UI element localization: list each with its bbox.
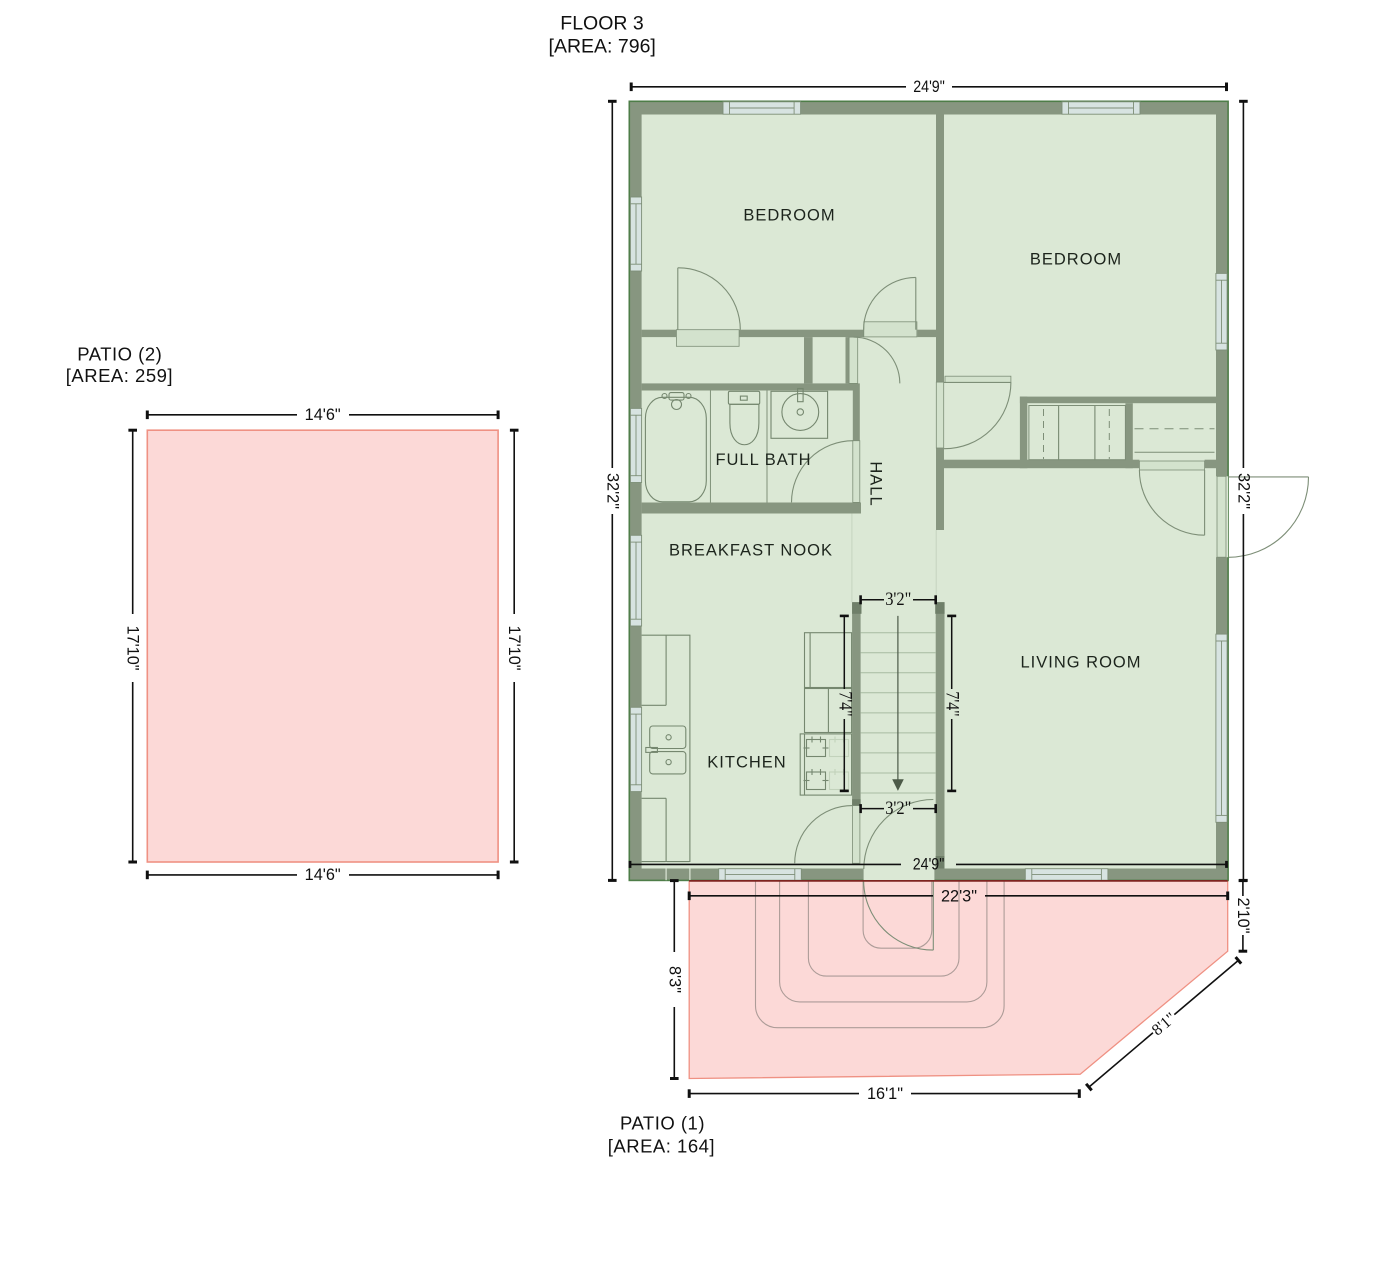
svg-text:HALL: HALL xyxy=(867,461,885,506)
svg-text:FLOOR 3: FLOOR 3 xyxy=(560,13,643,35)
svg-text:14'6": 14'6" xyxy=(305,406,341,424)
svg-text:7'4": 7'4" xyxy=(834,691,854,716)
svg-text:[AREA: 259]: [AREA: 259] xyxy=(66,365,173,386)
svg-text:BEDROOM: BEDROOM xyxy=(743,207,835,225)
svg-text:PATIO (1): PATIO (1) xyxy=(620,1112,705,1133)
svg-text:BEDROOM: BEDROOM xyxy=(1030,251,1122,269)
svg-text:KITCHEN: KITCHEN xyxy=(707,754,786,772)
svg-text:17'10": 17'10" xyxy=(505,625,523,670)
svg-text:3'2": 3'2" xyxy=(885,590,911,610)
svg-text:16'1": 16'1" xyxy=(867,1085,903,1103)
svg-text:PATIO (2): PATIO (2) xyxy=(77,343,162,364)
svg-text:8'3": 8'3" xyxy=(665,966,683,993)
svg-text:2'10": 2'10" xyxy=(1234,897,1252,933)
svg-text:7'4": 7'4" xyxy=(942,691,962,716)
svg-text:17'10": 17'10" xyxy=(124,625,142,670)
svg-text:24'9": 24'9" xyxy=(913,78,945,96)
svg-text:3'2": 3'2" xyxy=(885,799,911,819)
svg-text:32'2": 32'2" xyxy=(603,473,621,509)
svg-text:FULL BATH: FULL BATH xyxy=(715,451,811,469)
svg-text:22'3": 22'3" xyxy=(941,887,977,905)
svg-text:[AREA: 164]: [AREA: 164] xyxy=(608,1135,715,1156)
svg-text:[AREA: 796]: [AREA: 796] xyxy=(549,36,656,58)
svg-text:LIVING ROOM: LIVING ROOM xyxy=(1020,654,1141,672)
svg-text:24'9": 24'9" xyxy=(913,856,945,874)
svg-text:14'6": 14'6" xyxy=(305,866,341,884)
svg-text:BREAKFAST NOOK: BREAKFAST NOOK xyxy=(669,542,833,560)
svg-text:32'2": 32'2" xyxy=(1234,473,1252,509)
